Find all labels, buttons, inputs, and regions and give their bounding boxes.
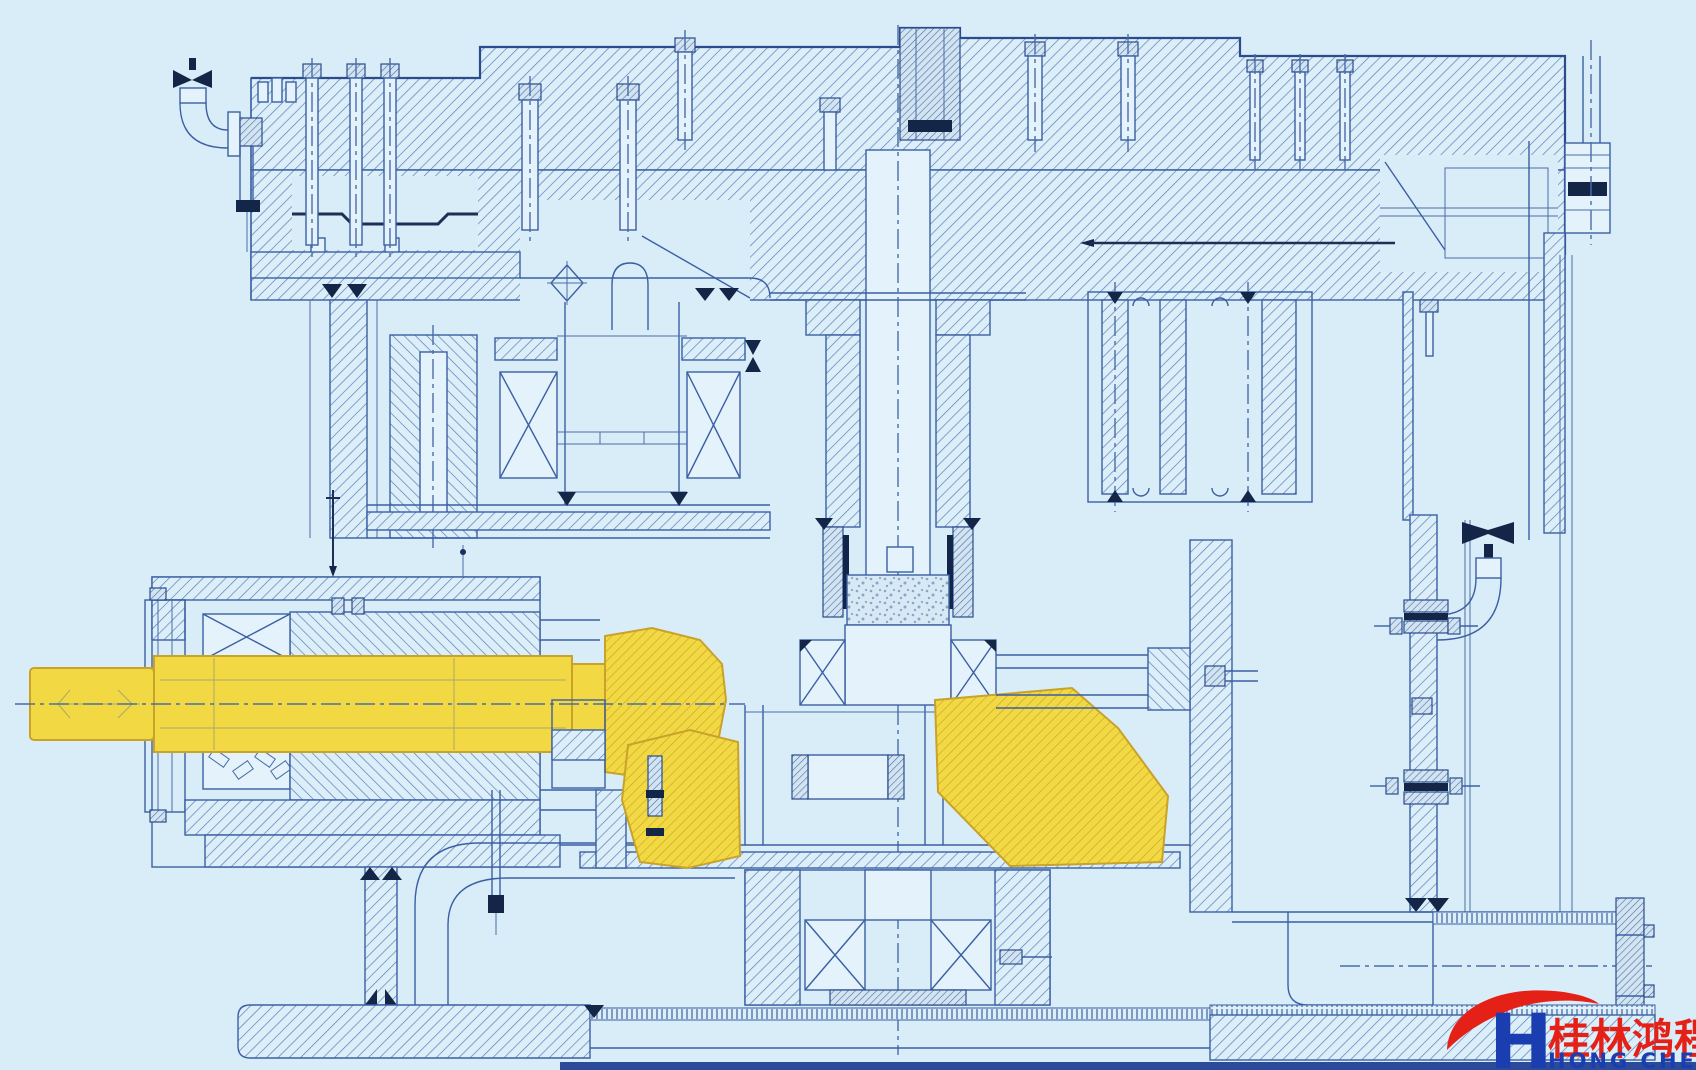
center-top-block	[900, 28, 960, 140]
stud-bolt	[381, 58, 399, 260]
ring-gear-hub	[745, 705, 943, 845]
pipe-clamp	[1412, 698, 1432, 714]
weld-marks	[558, 492, 688, 506]
bearing-xbox	[800, 640, 845, 705]
stud-bolt	[303, 58, 321, 260]
flange-joint	[1374, 600, 1478, 634]
bearing-xbox	[500, 372, 557, 478]
bearing-xbox	[931, 920, 991, 990]
lower-bearing-assembly	[560, 845, 1195, 1005]
valve-handwheel-icon	[1462, 522, 1514, 544]
oil-pipe	[1370, 515, 1514, 912]
roller-bearing	[203, 747, 291, 789]
weld-marks	[745, 340, 761, 372]
bearing-xbox	[687, 372, 740, 478]
housing-top-plate	[152, 577, 540, 600]
right-inner-wall	[1403, 292, 1438, 520]
stud-bolt	[347, 58, 365, 260]
ring-gear-right-section	[935, 688, 1168, 866]
support-foot	[360, 867, 402, 1005]
bearing-xbox	[805, 920, 865, 990]
bearing-xbox	[203, 614, 290, 660]
mill-side-wall	[1190, 540, 1232, 912]
right-top-fitting	[1565, 40, 1610, 245]
flange-joint	[1370, 770, 1480, 804]
bevel-hub	[800, 625, 996, 705]
right-cavity	[1380, 155, 1558, 272]
logo-h-letter: H	[1489, 997, 1553, 1070]
logo-english-text: HONG CHENG	[1548, 1049, 1696, 1070]
gearbox-cross-section-drawing: H 桂林鸿程 HONG CHENG	[0, 0, 1696, 1070]
gear-stack-right	[1088, 282, 1312, 512]
blueprint-page: H 桂林鸿程 HONG CHENG	[0, 0, 1696, 1070]
left-wall-column	[330, 300, 367, 538]
top-left-valve-assembly	[173, 58, 262, 252]
ring-gear-left-section	[622, 730, 740, 868]
sun-shaft-column	[557, 302, 687, 505]
valve-handwheel-icon	[173, 70, 212, 88]
